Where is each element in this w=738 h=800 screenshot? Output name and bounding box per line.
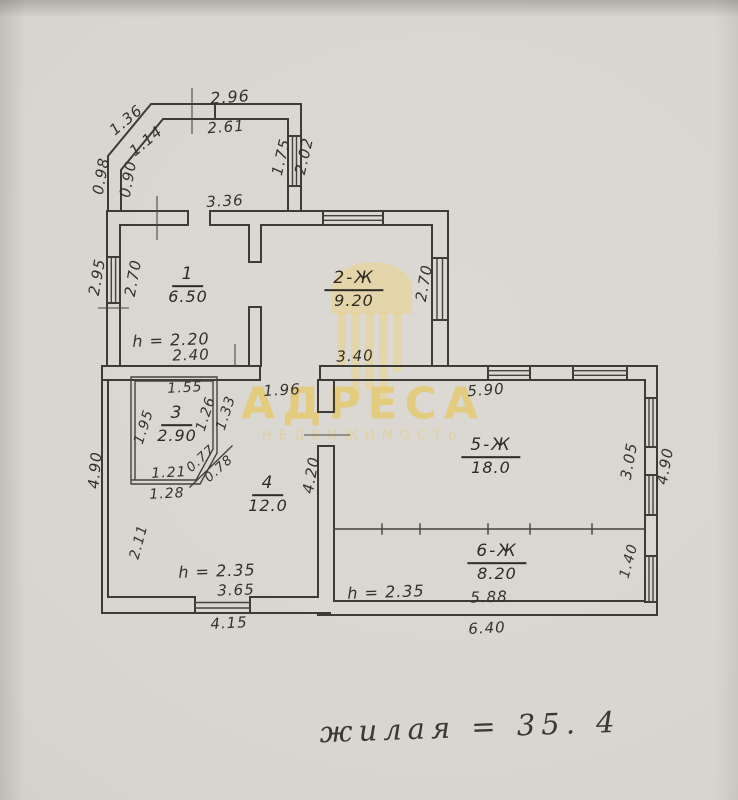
main-walls (102, 104, 657, 615)
floorplan-photo: АДРЕСА НЕДВИЖИМОСТЬ (0, 0, 738, 800)
thin-walls-and-windows (111, 136, 653, 608)
floor-plan-drawing (0, 0, 738, 800)
dimension-ticks (98, 88, 350, 435)
